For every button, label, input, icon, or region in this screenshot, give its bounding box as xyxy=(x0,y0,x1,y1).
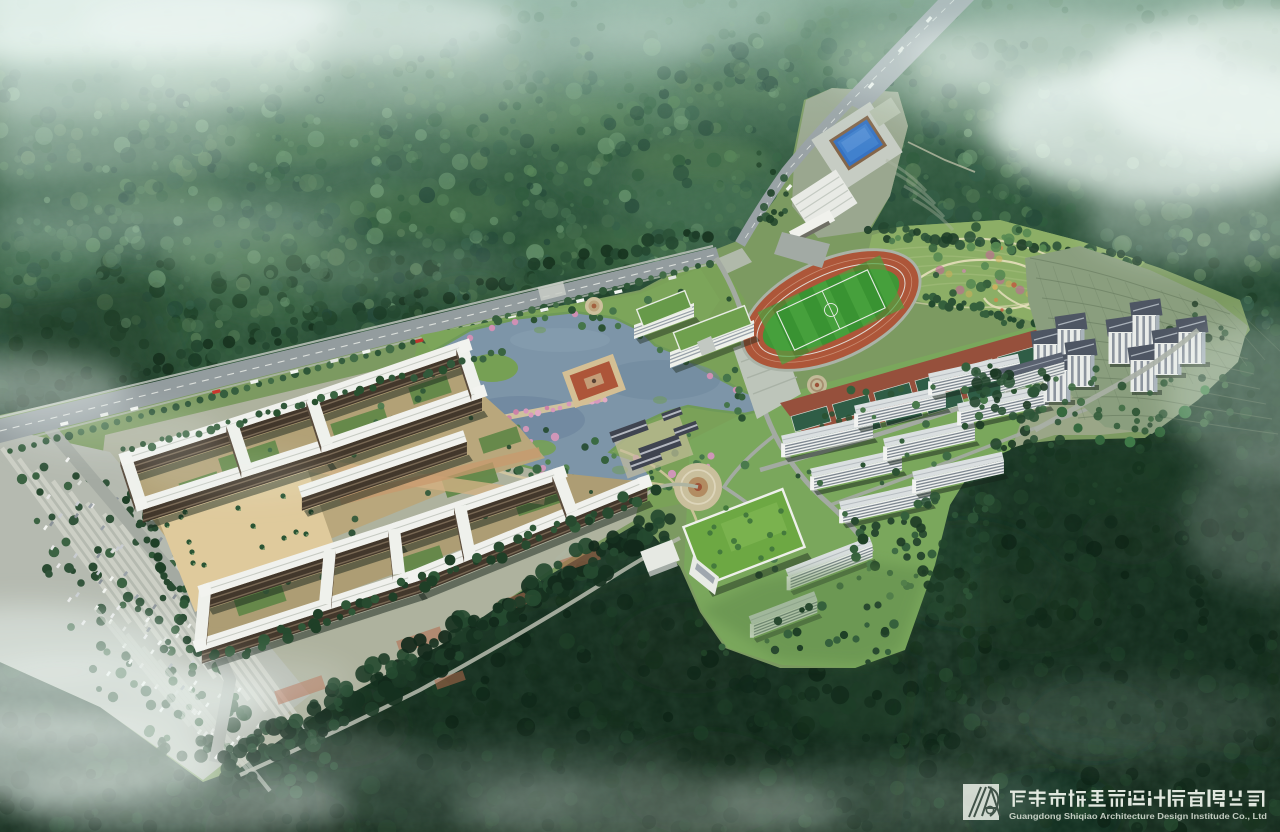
svg-text:Guangdong Shiqiao Architecture: Guangdong Shiqiao Architecture Design In… xyxy=(1009,811,1267,821)
